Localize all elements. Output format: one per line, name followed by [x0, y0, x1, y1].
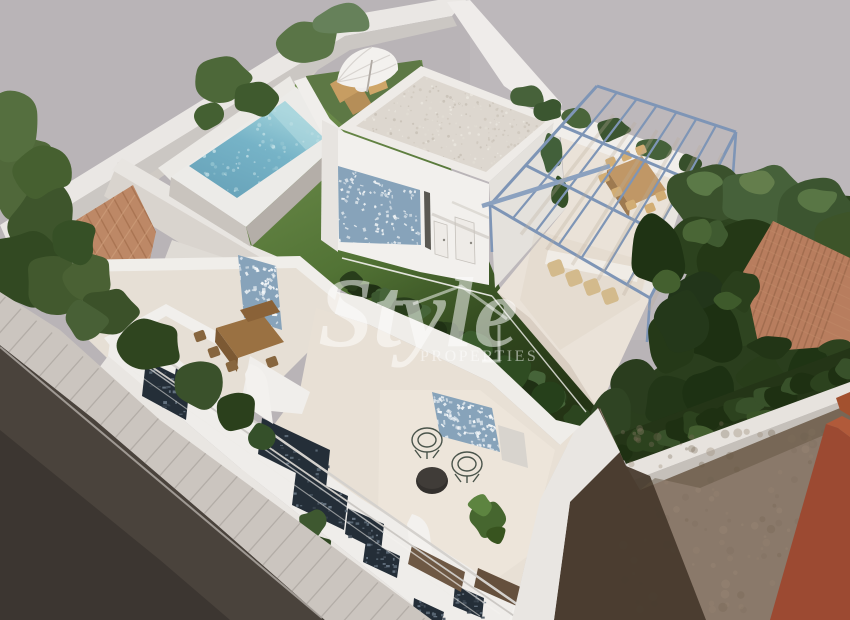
svg-text:PROPERTIES: PROPERTIES: [420, 348, 538, 365]
